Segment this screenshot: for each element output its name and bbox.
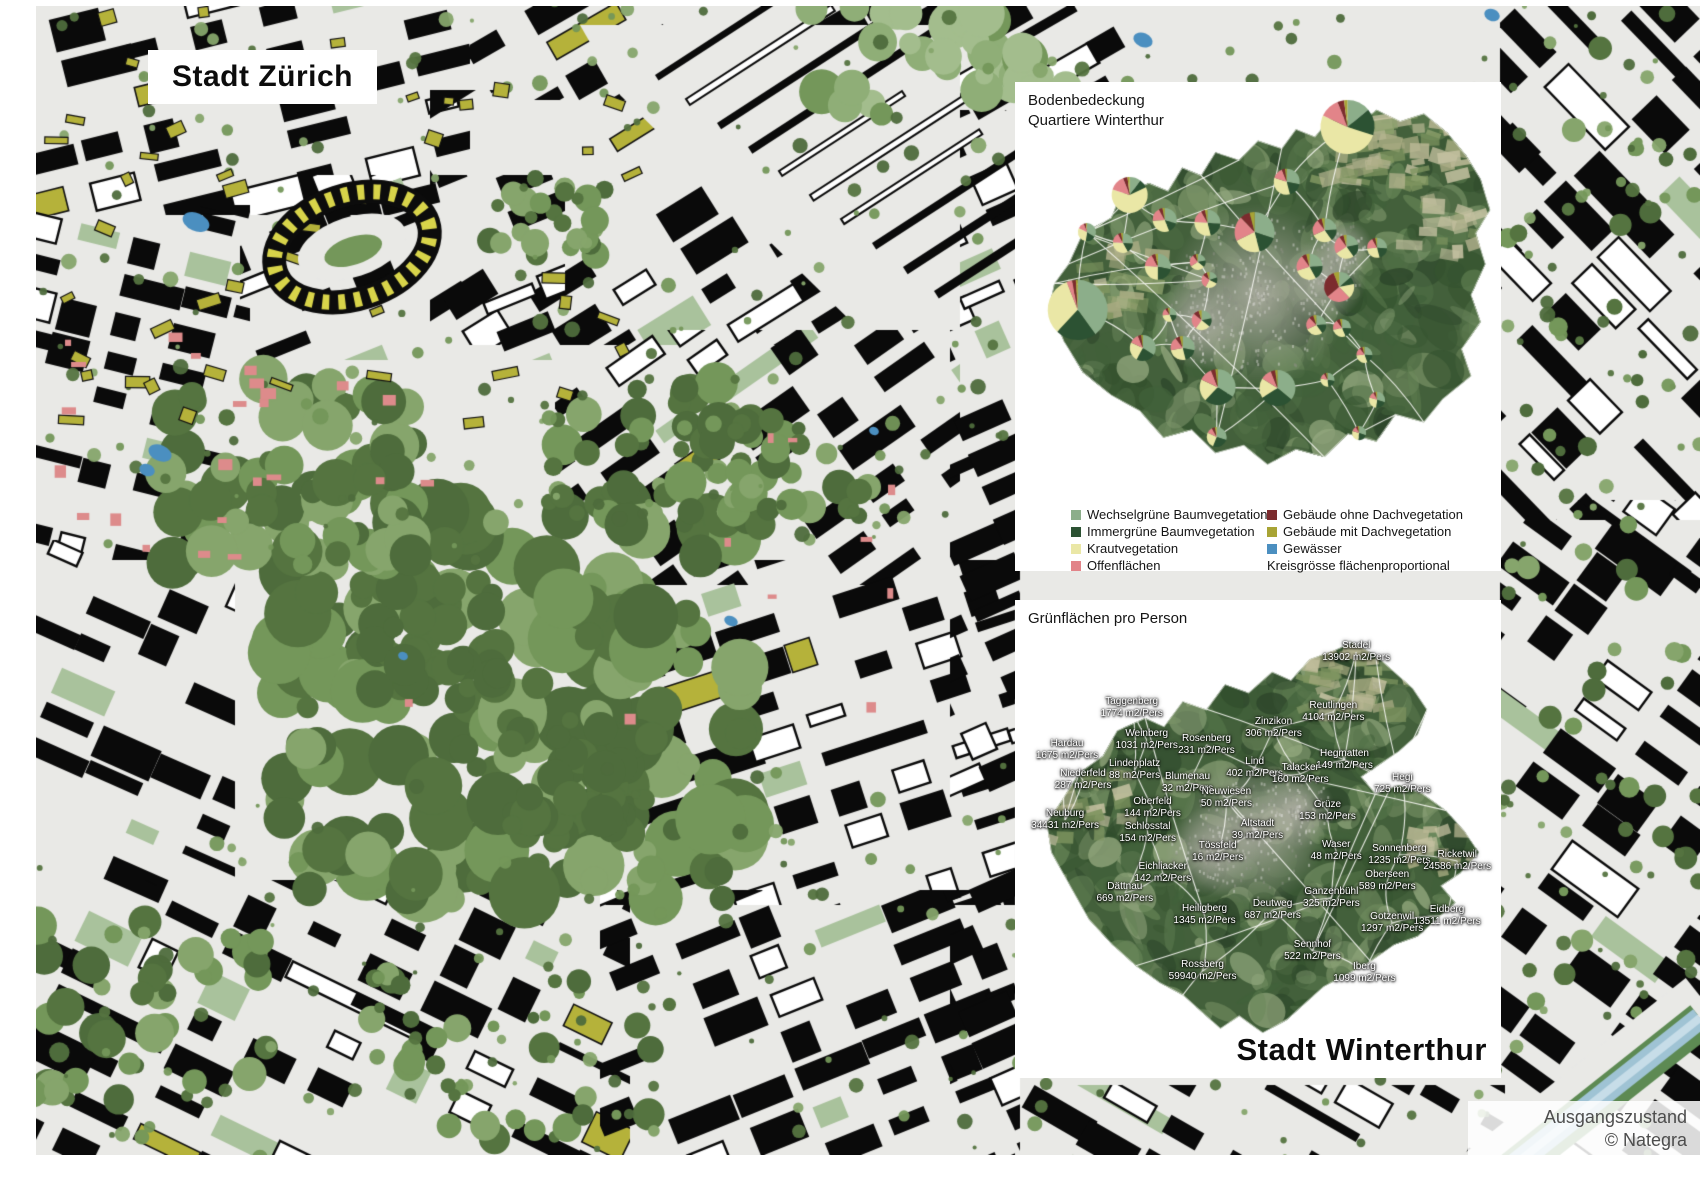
district-label: Iberg1099 m2/Pers	[1333, 961, 1395, 985]
district-name: Blumenau	[1162, 771, 1213, 783]
district-value: 144 m2/Pers	[1124, 808, 1181, 820]
panel-gruenflaechen: Grünflächen pro Person Stadel13902 m2/Pe…	[1015, 600, 1501, 1078]
district-label: Stadel13902 m2/Pers	[1322, 640, 1390, 664]
district-label: Altstadt39 m2/Pers	[1232, 818, 1283, 842]
district-label: Hegi725 m2/Pers	[1374, 772, 1431, 796]
district-label: Neuwiesen50 m2/Pers	[1201, 786, 1252, 810]
district-value: 1235 m2/Pers	[1368, 855, 1430, 867]
district-label: Oberseen589 m2/Pers	[1359, 869, 1416, 893]
district-value: 589 m2/Pers	[1359, 881, 1416, 893]
legend-note: Kreisgrösse flächenproportional	[1267, 557, 1463, 574]
district-label: Niederfeld287 m2/Pers	[1055, 768, 1112, 792]
district-name: Lindenplatz	[1109, 758, 1160, 770]
legend-swatch	[1071, 510, 1081, 520]
district-name: Sennhof	[1284, 939, 1341, 951]
district-label: Zinzikon306 m2/Pers	[1245, 716, 1302, 740]
legend-item: Immergrüne Baumvegetation	[1071, 523, 1267, 540]
figure: Stadt Zürich Nategra Bodenbedeckung Quar…	[0, 0, 1700, 1182]
district-value: 48 m2/Pers	[1311, 851, 1362, 863]
district-label: Rosenberg231 m2/Pers	[1178, 733, 1235, 757]
panel-bodenbedeckung-title-line1: Bodenbedeckung	[1028, 91, 1164, 111]
district-value: 160 m2/Pers	[1272, 774, 1329, 786]
district-label: Tössfeld16 m2/Pers	[1192, 840, 1243, 864]
district-name: Ganzenbühl	[1303, 886, 1360, 898]
district-value: 153 m2/Pers	[1299, 811, 1356, 823]
district-name: Sonnenberg	[1368, 843, 1430, 855]
district-label: Waser48 m2/Pers	[1311, 839, 1362, 863]
district-name: Rosenberg	[1178, 733, 1235, 745]
district-value: 154 m2/Pers	[1119, 833, 1176, 845]
district-value: 306 m2/Pers	[1245, 728, 1302, 740]
district-value: 1031 m2/Pers	[1116, 740, 1178, 752]
district-label: Ganzenbühl325 m2/Pers	[1303, 886, 1360, 910]
legend-swatch	[1071, 527, 1081, 537]
district-name: Hegi	[1374, 772, 1431, 784]
bodenbedeckung-map-canvas	[1015, 82, 1501, 571]
district-label: Oberfeld144 m2/Pers	[1124, 796, 1181, 820]
district-value: 522 m2/Pers	[1284, 951, 1341, 963]
legend-item: Wechselgrüne Baumvegetation	[1071, 506, 1267, 523]
legend-label: Wechselgrüne Baumvegetation	[1087, 507, 1267, 522]
district-label: Sonnenberg1235 m2/Pers	[1368, 843, 1430, 867]
district-value: 1297 m2/Pers	[1361, 923, 1423, 935]
district-name: Altstadt	[1232, 818, 1283, 830]
district-label: Neuburg34431 m2/Pers	[1031, 808, 1099, 832]
legend-label: Gebäude mit Dachvegetation	[1283, 524, 1451, 539]
district-name: Hegmatten	[1316, 748, 1373, 760]
district-value: 669 m2/Pers	[1096, 893, 1153, 905]
district-value: 1099 m2/Pers	[1333, 973, 1395, 985]
district-name: Stadel	[1322, 640, 1390, 652]
legend-item: Offenflächen	[1071, 557, 1267, 574]
district-label: Deutweg687 m2/Pers	[1244, 898, 1301, 922]
legend-label: Offenflächen	[1087, 558, 1160, 573]
district-value: 687 m2/Pers	[1244, 910, 1301, 922]
district-name: Reutlingen	[1302, 700, 1364, 712]
district-label: Hardau1675 m2/Pers	[1036, 738, 1098, 762]
district-name: Taggenberg	[1100, 696, 1162, 708]
legend-item: Gebäude mit Dachvegetation	[1267, 523, 1463, 540]
district-label: Schlosstal154 m2/Pers	[1119, 821, 1176, 845]
district-value: 24586 m2/Pers	[1423, 861, 1491, 873]
district-name: Gotzenwil	[1361, 911, 1423, 923]
district-name: Oberfeld	[1124, 796, 1181, 808]
legend-label: Immergrüne Baumvegetation	[1087, 524, 1255, 539]
district-label: Taggenberg1774 m2/Pers	[1100, 696, 1162, 720]
legend-swatch	[1071, 561, 1081, 571]
district-value: 287 m2/Pers	[1055, 780, 1112, 792]
district-value: 16 m2/Pers	[1192, 852, 1243, 864]
district-name: Tössfeld	[1192, 840, 1243, 852]
attribution-line2: © Nategra	[1478, 1129, 1687, 1152]
district-value: 325 m2/Pers	[1303, 898, 1360, 910]
district-name: Waser	[1311, 839, 1362, 851]
district-name: Deutweg	[1244, 898, 1301, 910]
zurich-label: Stadt Zürich	[172, 60, 353, 93]
district-name: Zinzikon	[1245, 716, 1302, 728]
district-value: 34431 m2/Pers	[1031, 820, 1099, 832]
district-label: Reutlingen4104 m2/Pers	[1302, 700, 1364, 724]
district-name: Neuburg	[1031, 808, 1099, 820]
legend-item: Gewässer	[1267, 540, 1463, 557]
district-label: Lindenplatz88 m2/Pers	[1109, 758, 1160, 782]
panel-bodenbedeckung-title: Bodenbedeckung Quartiere Winterthur	[1028, 91, 1164, 131]
district-name: Rossberg	[1169, 959, 1237, 971]
legend-column-right: Gebäude ohne DachvegetationGebäude mit D…	[1267, 506, 1463, 574]
district-value: 4104 m2/Pers	[1302, 712, 1364, 724]
district-label: Grüze153 m2/Pers	[1299, 799, 1356, 823]
district-value: 13902 m2/Pers	[1322, 652, 1390, 664]
district-label: Gotzenwil1297 m2/Pers	[1361, 911, 1423, 935]
legend-label: Gewässer	[1283, 541, 1342, 556]
district-label: Ricketwil24586 m2/Pers	[1423, 849, 1491, 873]
district-label: Dättnau669 m2/Pers	[1096, 881, 1153, 905]
panel-bodenbedeckung-title-line2: Quartiere Winterthur	[1028, 111, 1164, 131]
district-name: Schlosstal	[1119, 821, 1176, 833]
district-name: Oberseen	[1359, 869, 1416, 881]
district-name: Hardau	[1036, 738, 1098, 750]
district-value: 1774 m2/Pers	[1100, 708, 1162, 720]
district-name: Weinberg	[1116, 728, 1178, 740]
district-name: Iberg	[1333, 961, 1395, 973]
legend-swatch	[1267, 544, 1277, 554]
attribution-line1: Ausgangszustand	[1478, 1106, 1687, 1129]
legend-label: Krautvegetation	[1087, 541, 1178, 556]
zurich-label-box: Stadt Zürich	[148, 50, 377, 104]
district-name: Heiligberg	[1173, 903, 1235, 915]
district-label: Rossberg59940 m2/Pers	[1169, 959, 1237, 983]
legend-item: Krautvegetation	[1071, 540, 1267, 557]
district-value: 1675 m2/Pers	[1036, 750, 1098, 762]
district-name: Niederfeld	[1055, 768, 1112, 780]
district-value: 88 m2/Pers	[1109, 770, 1160, 782]
district-value: 13511 m2/Pers	[1414, 916, 1481, 928]
district-label: Sennhof522 m2/Pers	[1284, 939, 1341, 963]
district-label: Weinberg1031 m2/Pers	[1116, 728, 1178, 752]
panel-gruenflaechen-title: Grünflächen pro Person	[1028, 609, 1187, 629]
district-name: Neuwiesen	[1201, 786, 1252, 798]
district-name: Grüze	[1299, 799, 1356, 811]
district-name: Eidberg	[1414, 904, 1481, 916]
district-labels: Stadel13902 m2/PersTaggenberg1774 m2/Per…	[1015, 600, 1501, 1078]
district-value: 59940 m2/Pers	[1169, 971, 1237, 983]
legend-column-left: Wechselgrüne BaumvegetationImmergrüne Ba…	[1071, 506, 1267, 574]
district-name: Ricketwil	[1423, 849, 1491, 861]
panel-bodenbedeckung: Bodenbedeckung Quartiere Winterthur Wech…	[1015, 82, 1501, 571]
winterthur-label: Stadt Winterthur	[1236, 1032, 1487, 1068]
district-value: 1345 m2/Pers	[1173, 915, 1235, 927]
district-label: Eidberg13511 m2/Pers	[1414, 904, 1481, 928]
district-name: Eichliacker	[1134, 861, 1191, 873]
district-value: 725 m2/Pers	[1374, 784, 1431, 796]
attribution: Ausgangszustand © Nategra	[1468, 1101, 1700, 1160]
legend-swatch	[1267, 510, 1277, 520]
district-name: Dättnau	[1096, 881, 1153, 893]
district-label: Heiligberg1345 m2/Pers	[1173, 903, 1235, 927]
legend-label: Gebäude ohne Dachvegetation	[1283, 507, 1463, 522]
legend-item: Gebäude ohne Dachvegetation	[1267, 506, 1463, 523]
legend-swatch	[1071, 544, 1081, 554]
district-value: 50 m2/Pers	[1201, 798, 1252, 810]
district-label: Talacker160 m2/Pers	[1272, 762, 1329, 786]
district-name: Talacker	[1272, 762, 1329, 774]
legend-swatch	[1267, 527, 1277, 537]
